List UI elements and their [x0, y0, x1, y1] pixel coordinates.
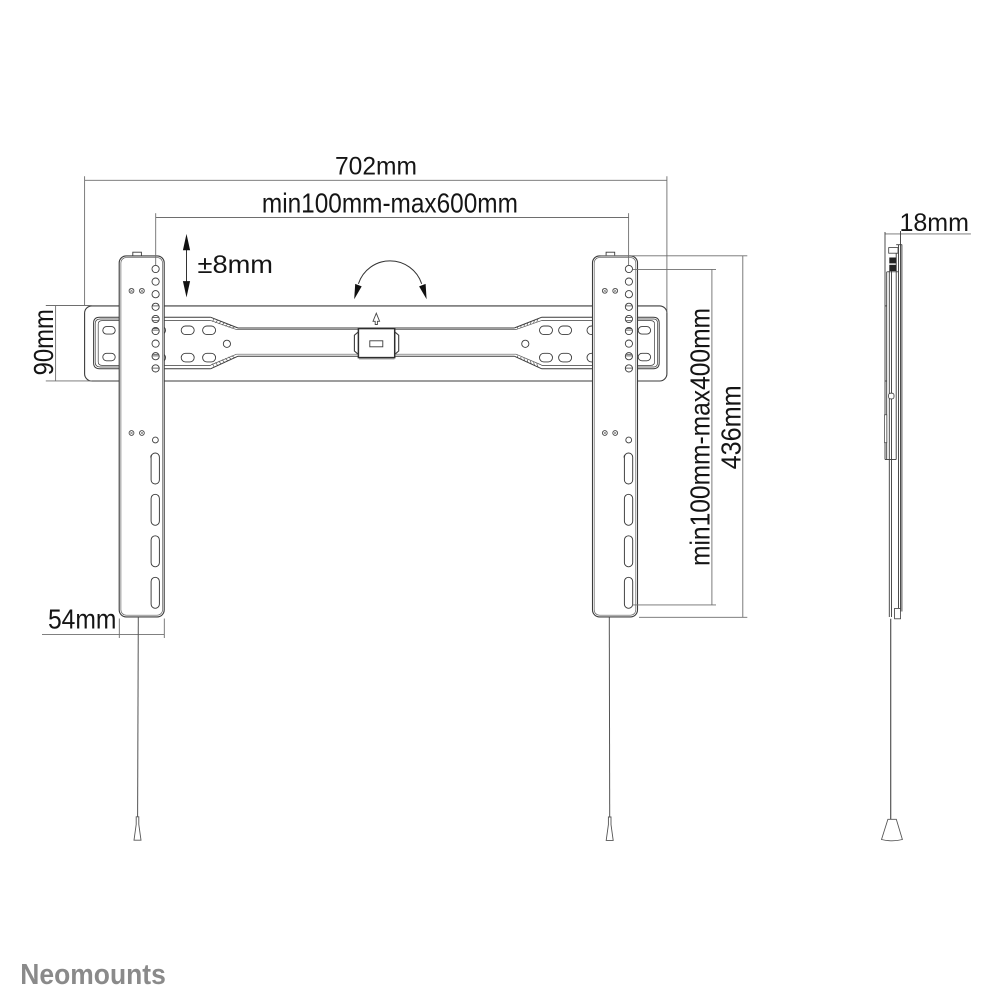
svg-text:90mm: 90mm: [28, 309, 59, 375]
svg-text:54mm: 54mm: [48, 604, 117, 635]
svg-text:min100mm-max400mm: min100mm-max400mm: [685, 308, 716, 566]
svg-text:18mm: 18mm: [899, 209, 969, 237]
svg-text:min100mm-max600mm: min100mm-max600mm: [262, 188, 518, 219]
svg-text:702mm: 702mm: [335, 153, 417, 181]
svg-text:±8mm: ±8mm: [198, 251, 274, 279]
svg-text:436mm: 436mm: [716, 385, 747, 469]
svg-text:Neomounts: Neomounts: [20, 959, 166, 991]
